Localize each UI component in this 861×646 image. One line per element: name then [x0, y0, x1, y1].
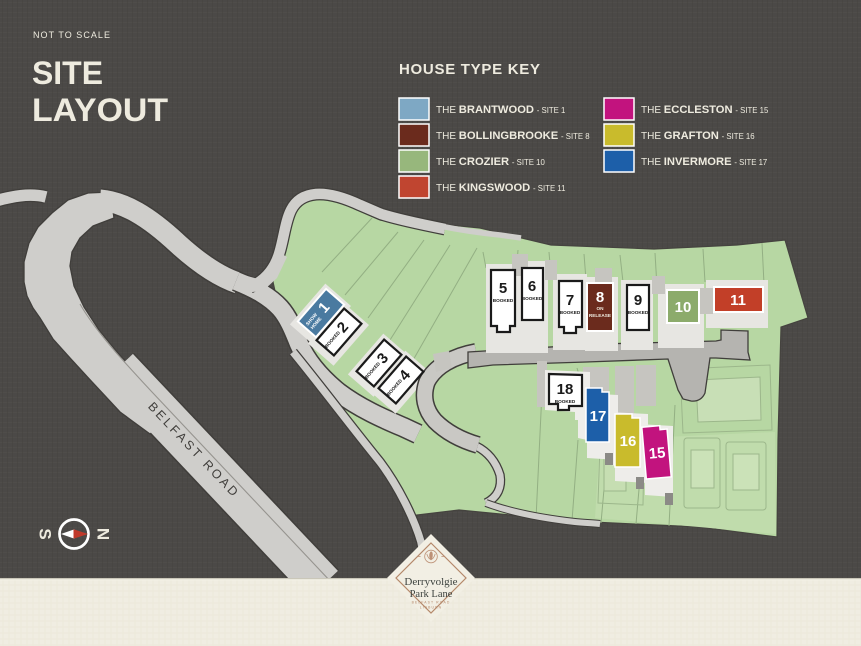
svg-text:8: 8: [596, 289, 604, 306]
svg-text:6: 6: [528, 278, 536, 295]
svg-text:16: 16: [620, 433, 637, 450]
svg-text:LISBURN: LISBURN: [420, 606, 442, 610]
svg-text:Derryvolgie: Derryvolgie: [404, 576, 457, 588]
svg-text:THE CROZIER - SITE 10: THE CROZIER - SITE 10: [436, 156, 546, 168]
svg-text:17: 17: [590, 408, 607, 425]
svg-text:RELEASE: RELEASE: [589, 313, 611, 318]
svg-text:BOOKED: BOOKED: [555, 399, 576, 404]
svg-text:S: S: [36, 528, 55, 539]
svg-text:HOUSE TYPE KEY: HOUSE TYPE KEY: [399, 61, 540, 78]
svg-text:NOT TO SCALE: NOT TO SCALE: [33, 30, 110, 40]
svg-text:BOOKED: BOOKED: [560, 310, 581, 315]
svg-text:N: N: [94, 528, 113, 540]
svg-text:BOOKED: BOOKED: [522, 296, 543, 301]
svg-text:LAYOUT: LAYOUT: [32, 92, 168, 128]
svg-text:15: 15: [648, 444, 666, 462]
svg-text:11: 11: [730, 292, 746, 309]
svg-text:THE GRAFTON - SITE 16: THE GRAFTON - SITE 16: [641, 130, 755, 142]
svg-text:7: 7: [566, 292, 574, 309]
svg-text:Park Lane: Park Lane: [410, 589, 453, 600]
svg-text:ON: ON: [596, 306, 604, 311]
svg-text:10: 10: [675, 299, 692, 316]
svg-text:BELFAST ROAD: BELFAST ROAD: [412, 601, 451, 605]
svg-text:BOOKED: BOOKED: [493, 298, 514, 303]
svg-text:5: 5: [499, 280, 507, 297]
svg-text:THE BRANTWOOD - SITE 1: THE BRANTWOOD - SITE 1: [436, 104, 565, 116]
svg-text:THE BOLLINGBROOKE - SITE 8: THE BOLLINGBROOKE - SITE 8: [436, 130, 590, 142]
svg-text:BOOKED: BOOKED: [628, 310, 649, 315]
svg-text:THE INVERMORE - SITE 17: THE INVERMORE - SITE 17: [641, 156, 767, 168]
svg-text:9: 9: [634, 292, 642, 309]
svg-text:SITE: SITE: [32, 55, 103, 91]
svg-text:THE KINGSWOOD - SITE 11: THE KINGSWOOD - SITE 11: [436, 182, 565, 194]
svg-text:THE ECCLESTON - SITE 15: THE ECCLESTON - SITE 15: [641, 104, 769, 116]
svg-text:18: 18: [557, 381, 574, 398]
